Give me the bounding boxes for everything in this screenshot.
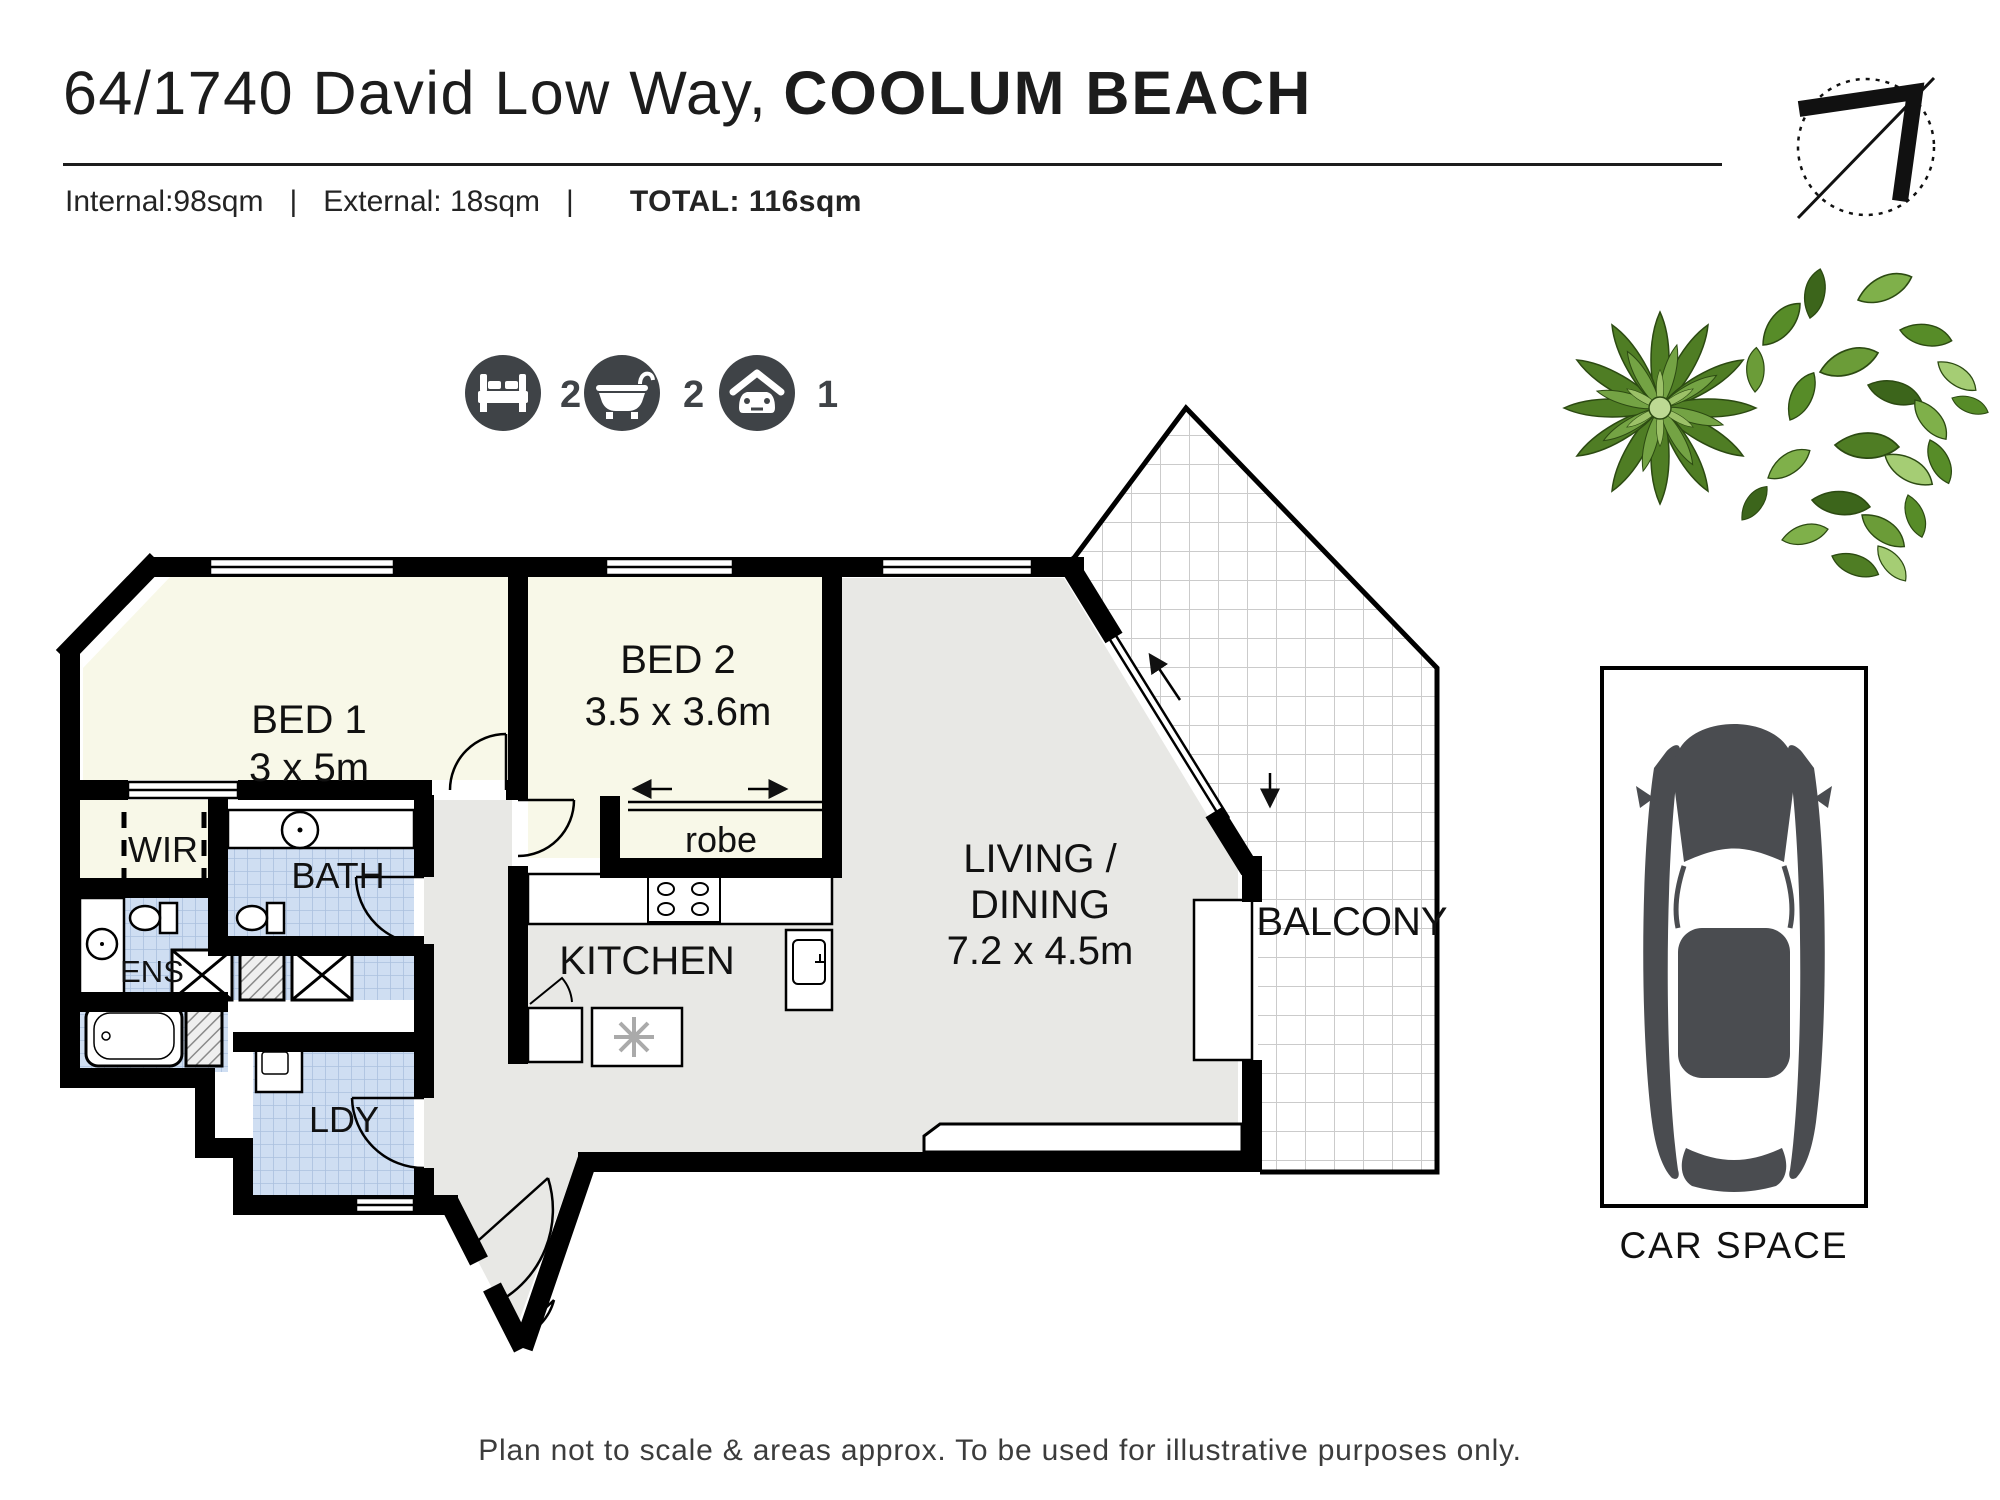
garage-count: 1 [817,374,838,416]
bath-toilet [237,903,284,933]
window-living [882,559,1032,575]
window-ldy [356,1198,414,1212]
window-bed2 [606,559,733,575]
window-bed1 [210,559,394,575]
label-ldy: LDY [309,1099,379,1140]
floor-bed2 [528,577,822,800]
floorplan-page: BED 1 3 x 5m BED 2 3.5 x 3.6m LIVING / D… [0,0,2000,1500]
label-bed2-name: BED 2 [620,638,736,682]
plant-art [1564,267,1991,587]
north-arrow-icon [1798,78,1934,218]
feature-icons: 2 2 [465,355,838,431]
laundry-tub [256,1046,302,1092]
balcony-window-unit [1194,900,1252,1060]
label-bed2-dims: 3.5 x 3.6m [585,690,772,734]
label-living-dims: 7.2 x 4.5m [947,929,1134,973]
label-wir: WIR [128,829,198,870]
shaft-hatch-2 [186,1008,222,1066]
bath-shower [292,950,352,1000]
floor-robe [528,796,822,858]
title-underline [63,163,1722,166]
total-area: TOTAL: 116sqm [630,185,862,219]
page-title-suburb: COOLUM BEACH [783,59,1312,127]
bath-count: 2 [683,374,704,416]
area-summary: Internal:98sqm | External: 18sqm | TOTAL… [65,185,862,219]
shaft-hatch-1 [240,950,284,1000]
page-title: 64/1740 David Low Way,COOLUM BEACH [63,58,1312,128]
label-car-space: CAR SPACE [1619,1225,1848,1266]
separator: | [566,185,574,219]
label-kitchen: KITCHEN [559,939,735,983]
bathtub [86,1006,182,1066]
disclaimer-text: Plan not to scale & areas approx. To be … [0,1434,2000,1468]
stove-cooktop [648,876,720,922]
bath-feature: 2 [584,355,704,431]
car-space: CAR SPACE [1602,668,1866,1266]
garage-feature: 1 [719,355,838,431]
succulent-plant [1564,312,1756,504]
tv-bench [924,1124,1242,1152]
internal-area: Internal:98sqm [65,185,263,219]
foliage-cluster [1734,267,1991,587]
label-bath: BATH [291,855,384,896]
bed-count: 2 [560,374,581,416]
label-bed1-name: BED 1 [251,698,367,742]
external-area: External: 18sqm [323,185,540,219]
window-wir [128,782,238,798]
label-ens: ENS [120,954,184,989]
page-title-address: 64/1740 David Low Way, [63,59,767,127]
label-bed1-dims: 3 x 5m [249,746,369,790]
ens-toilet [130,903,177,933]
label-living-2: DINING [970,883,1110,927]
label-robe: robe [685,819,757,860]
kitchen-sink [786,930,832,1010]
kitchen-bench-left [528,1008,582,1062]
label-living-1: LIVING / [963,837,1117,881]
fan-symbol [614,1017,654,1057]
separator: | [289,185,297,219]
bath-vanity [228,810,414,848]
floorplan-graphic: BED 1 3 x 5m BED 2 3.5 x 3.6m LIVING / D… [0,0,2000,1500]
bed-feature: 2 [465,355,581,431]
label-balcony: BALCONY [1256,900,1447,944]
